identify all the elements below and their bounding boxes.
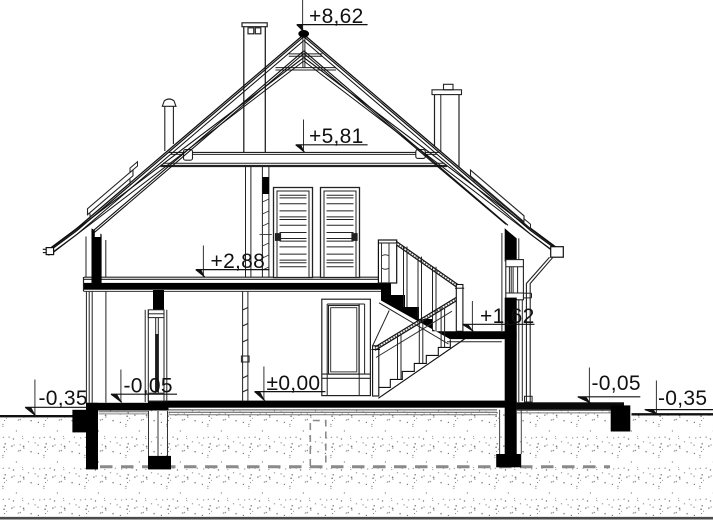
svg-text:+5,81: +5,81 (309, 125, 364, 148)
svg-text:-0,35: -0,35 (39, 387, 88, 410)
svg-text:-0,05: -0,05 (124, 375, 173, 398)
svg-text:+8,62: +8,62 (309, 5, 364, 28)
svg-text:+2,88: +2,88 (211, 250, 266, 273)
svg-text:-0,05: -0,05 (592, 372, 641, 395)
svg-text:+1,62: +1,62 (480, 305, 535, 328)
svg-text:±0,00: ±0,00 (267, 372, 321, 395)
svg-text:-0,35: -0,35 (658, 387, 707, 410)
